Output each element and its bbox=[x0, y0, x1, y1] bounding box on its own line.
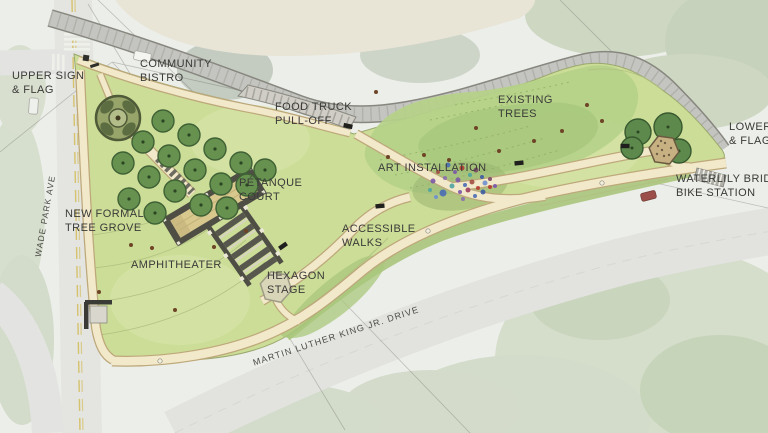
pavilion-paver-dot bbox=[656, 153, 658, 155]
art-dot bbox=[460, 166, 465, 171]
art-dot bbox=[461, 197, 465, 201]
tree-center-dot bbox=[245, 183, 248, 186]
map-canvas bbox=[0, 0, 768, 433]
pavilion-paver-dot bbox=[670, 147, 672, 149]
tree-center-dot bbox=[127, 197, 130, 200]
tree-center-dot bbox=[667, 126, 670, 129]
art-dot bbox=[446, 163, 451, 168]
existing-tree-dot bbox=[150, 246, 154, 250]
site-plan-map: UPPER SIGN& FLAG COMMUNITYBISTRO FOOD TR… bbox=[0, 0, 768, 433]
path-node bbox=[600, 181, 604, 185]
art-dot bbox=[493, 184, 497, 188]
bench bbox=[375, 203, 384, 208]
tree-center-dot bbox=[161, 119, 164, 122]
art-dot bbox=[483, 181, 488, 186]
bench bbox=[621, 144, 630, 148]
existing-tree-dot bbox=[560, 129, 564, 133]
pavilion-paver-dot bbox=[661, 149, 663, 151]
art-dot bbox=[436, 170, 440, 174]
art-dot bbox=[443, 176, 447, 180]
existing-tree-dot bbox=[422, 153, 426, 157]
existing-tree-dot bbox=[97, 290, 101, 294]
tree-center-dot bbox=[213, 147, 216, 150]
tree-center-dot bbox=[637, 131, 640, 134]
tree-center-dot bbox=[121, 161, 124, 164]
art-dot bbox=[481, 190, 486, 195]
art-dot bbox=[473, 194, 477, 198]
art-dot bbox=[488, 177, 492, 181]
art-dot bbox=[458, 190, 462, 194]
existing-tree-dot bbox=[173, 308, 177, 312]
pavilion-paver-dot bbox=[668, 154, 670, 156]
existing-tree-dot bbox=[129, 243, 133, 247]
existing-tree-dot bbox=[447, 158, 451, 162]
tree-center-dot bbox=[167, 154, 170, 157]
art-dot bbox=[480, 175, 484, 179]
pavilion-paver-dot bbox=[663, 155, 665, 157]
art-dot bbox=[470, 180, 475, 185]
existing-tree-dot bbox=[497, 149, 501, 153]
bench bbox=[514, 160, 523, 165]
art-dot bbox=[466, 188, 471, 193]
tree-center-dot bbox=[631, 147, 634, 150]
existing-tree-dot bbox=[600, 119, 604, 123]
art-dot bbox=[453, 170, 457, 174]
existing-tree-dot bbox=[585, 103, 589, 107]
existing-tree-dot bbox=[212, 245, 216, 249]
art-dot bbox=[476, 186, 480, 190]
tree-center-dot bbox=[147, 175, 150, 178]
car-white bbox=[28, 98, 38, 115]
existing-tree-dot bbox=[474, 126, 478, 130]
path-node bbox=[426, 229, 430, 233]
tree-center-dot bbox=[193, 168, 196, 171]
pavilion-paver-dot bbox=[657, 145, 659, 147]
path-node bbox=[158, 359, 162, 363]
tree-center-dot bbox=[187, 133, 190, 136]
pavilion-paver-dot bbox=[664, 142, 666, 144]
tree-center-dot bbox=[219, 182, 222, 185]
existing-tree-dot bbox=[386, 155, 390, 159]
art-dot bbox=[440, 190, 447, 197]
pavilion-paver-dot bbox=[660, 140, 662, 142]
art-dot bbox=[428, 188, 432, 192]
art-dot bbox=[431, 179, 436, 184]
art-dot bbox=[488, 185, 492, 189]
tree-center-dot bbox=[225, 206, 228, 209]
existing-tree-dot bbox=[374, 90, 378, 94]
tree-center-dot bbox=[239, 161, 242, 164]
existing-tree-dot bbox=[244, 229, 248, 233]
circular-plaza bbox=[96, 96, 140, 140]
existing-tree-dot bbox=[532, 139, 536, 143]
tree-center-dot bbox=[199, 203, 202, 206]
tree-center-dot bbox=[141, 140, 144, 143]
art-dot bbox=[474, 168, 479, 173]
art-dot bbox=[456, 178, 461, 183]
tree-center-dot bbox=[263, 168, 266, 171]
art-dot bbox=[434, 195, 438, 199]
art-dot bbox=[463, 183, 467, 187]
art-dot bbox=[450, 184, 455, 189]
tree-center-dot bbox=[173, 189, 176, 192]
art-dot bbox=[468, 173, 472, 177]
tree-center-dot bbox=[153, 211, 156, 214]
